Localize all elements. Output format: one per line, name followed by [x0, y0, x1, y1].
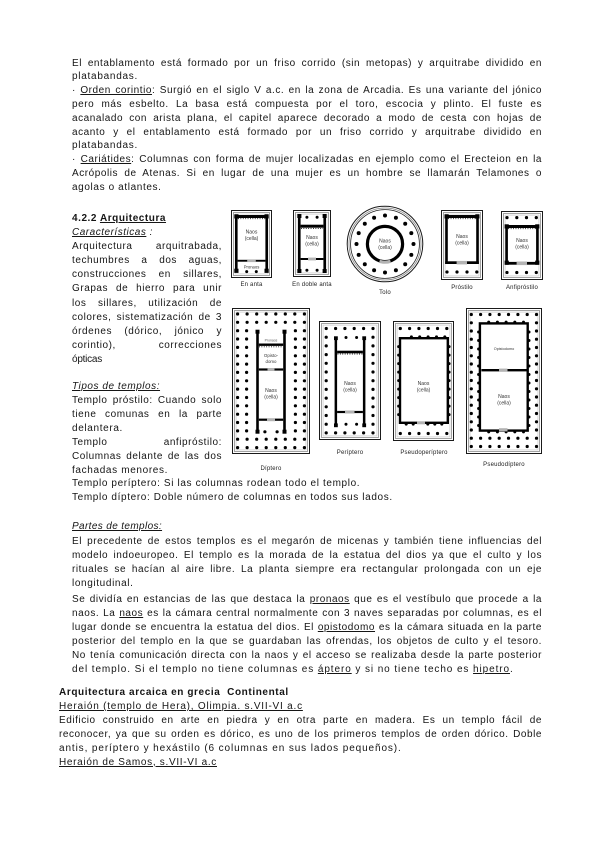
- svg-text:Opistodomo: Opistodomo: [494, 347, 514, 351]
- svg-text:Naos: Naos: [246, 230, 258, 236]
- svg-text:(cella): (cella): [305, 242, 319, 248]
- svg-text:Naos: Naos: [516, 238, 528, 244]
- svg-text:Pronaos: Pronaos: [265, 339, 278, 343]
- svg-text:Naos: Naos: [498, 394, 510, 400]
- svg-text:Naos: Naos: [379, 239, 391, 245]
- svg-text:Naos: Naos: [344, 381, 356, 387]
- svg-text:Pronaos: Pronaos: [244, 264, 260, 269]
- svg-text:(cella): (cella): [515, 245, 529, 251]
- svg-text:(cella): (cella): [417, 388, 431, 394]
- svg-text:Naos: Naos: [456, 234, 468, 240]
- svg-text:(cella): (cella): [264, 395, 278, 401]
- svg-text:(cella): (cella): [378, 245, 392, 251]
- svg-text:Naos: Naos: [306, 235, 318, 241]
- svg-text:Naos: Naos: [418, 381, 430, 387]
- svg-text:(cella): (cella): [497, 401, 511, 407]
- svg-text:(cella): (cella): [455, 241, 469, 247]
- svg-text:Naos: Naos: [265, 388, 277, 394]
- svg-text:(cella): (cella): [245, 236, 259, 242]
- svg-text:(cella): (cella): [343, 388, 357, 394]
- svg-text:Opisto-: Opisto-: [264, 353, 279, 358]
- svg-text:domo: domo: [266, 359, 278, 364]
